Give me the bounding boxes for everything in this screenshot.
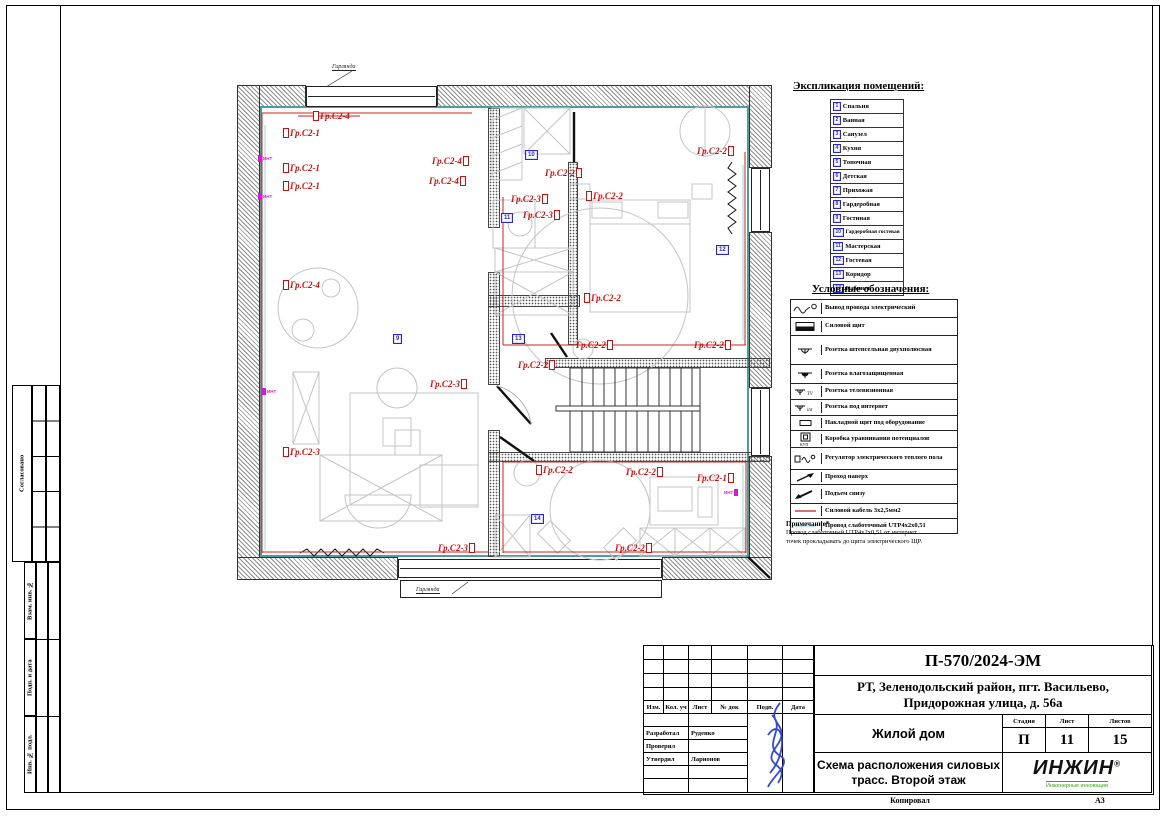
utp-wires [265,125,743,550]
socket-icon [283,128,289,138]
circuit-label: Гр.С2-1 [283,163,320,173]
circuit-label: Гр.С2-4 [283,280,320,290]
socket-icon [584,293,590,303]
socket-icon [460,176,466,186]
signature [742,695,802,795]
socket-icon [549,360,555,370]
circuit-label: Гр.С2-2 [697,146,734,156]
circuit-label: Гр.С2-2 [536,465,573,475]
socket-icon [469,543,475,553]
circuit-label: Гр.С2-2 [545,168,582,178]
circuit-label: Гр.С2-1 [283,181,320,191]
room-badge: 11 [501,213,513,223]
room-badge: 9 [393,334,402,344]
internet-point: ИНТ [262,388,276,395]
circuit-label: Гр.С2-3 [430,379,467,389]
socket-icon [554,210,560,220]
garland-label-bottom: Гирлянда [416,587,440,594]
internet-icon [258,193,262,200]
socket-icon [607,340,613,350]
socket-icon [542,194,548,204]
circuit-label: Гр.С2-1 [697,473,734,483]
internet-icon [262,388,266,395]
circuit-label: Гр.С2-2 [518,360,555,370]
internet-point: ИНТ [258,193,272,200]
internet-point: ИНТ [724,489,738,496]
room-badge: 10 [525,150,538,160]
circuit-label: Гр.С2-2 [694,340,731,350]
socket-icon [576,168,582,178]
internet-icon [734,489,738,496]
room-badge: 12 [716,245,729,255]
circuit-label: Гр.С2-2 [626,467,663,477]
drawing-sheet: Согласовано Взам. инв. № Подп. и дата Ин… [0,0,1166,816]
circuit-label: Гр.С2-4 [313,111,350,121]
circuit-label: Гр.С2-4 [432,156,469,166]
socket-icon [728,146,734,156]
socket-icon [283,447,289,457]
socket-icon [586,191,592,201]
circuit-label: Гр.С2-2 [576,340,613,350]
circuit-label: Гр.С2-2 [586,191,623,201]
circuit-label: Гр.С2-4 [429,176,466,186]
room-badge: 13 [512,334,525,344]
socket-icon [463,156,469,166]
internet-icon [258,155,262,162]
circuit-label: Гр.С2-2 [584,293,621,303]
socket-icon [728,473,734,483]
room-badge: 14 [531,514,544,524]
socket-icon [646,543,652,553]
garland-label-top: Гирлянда [332,64,356,71]
socket-icon [313,111,319,121]
plan-lineart [0,0,1166,816]
socket-icon [536,465,542,475]
circuit-label: Гр.С2-3 [283,447,320,457]
circuit-label: Гр.С2-1 [283,128,320,138]
socket-icon [283,181,289,191]
internet-point: ИНТ [258,155,272,162]
socket-icon [657,467,663,477]
socket-icon [283,280,289,290]
circuit-label: Гр.С2-2 [615,543,652,553]
socket-icon [283,163,289,173]
circuit-label: Гр.С2-3 [523,210,560,220]
circuit-label: Гр.С2-3 [511,194,548,204]
socket-icon [725,340,731,350]
socket-icon [461,379,467,389]
circuit-label: Гр.С2-3 [438,543,475,553]
